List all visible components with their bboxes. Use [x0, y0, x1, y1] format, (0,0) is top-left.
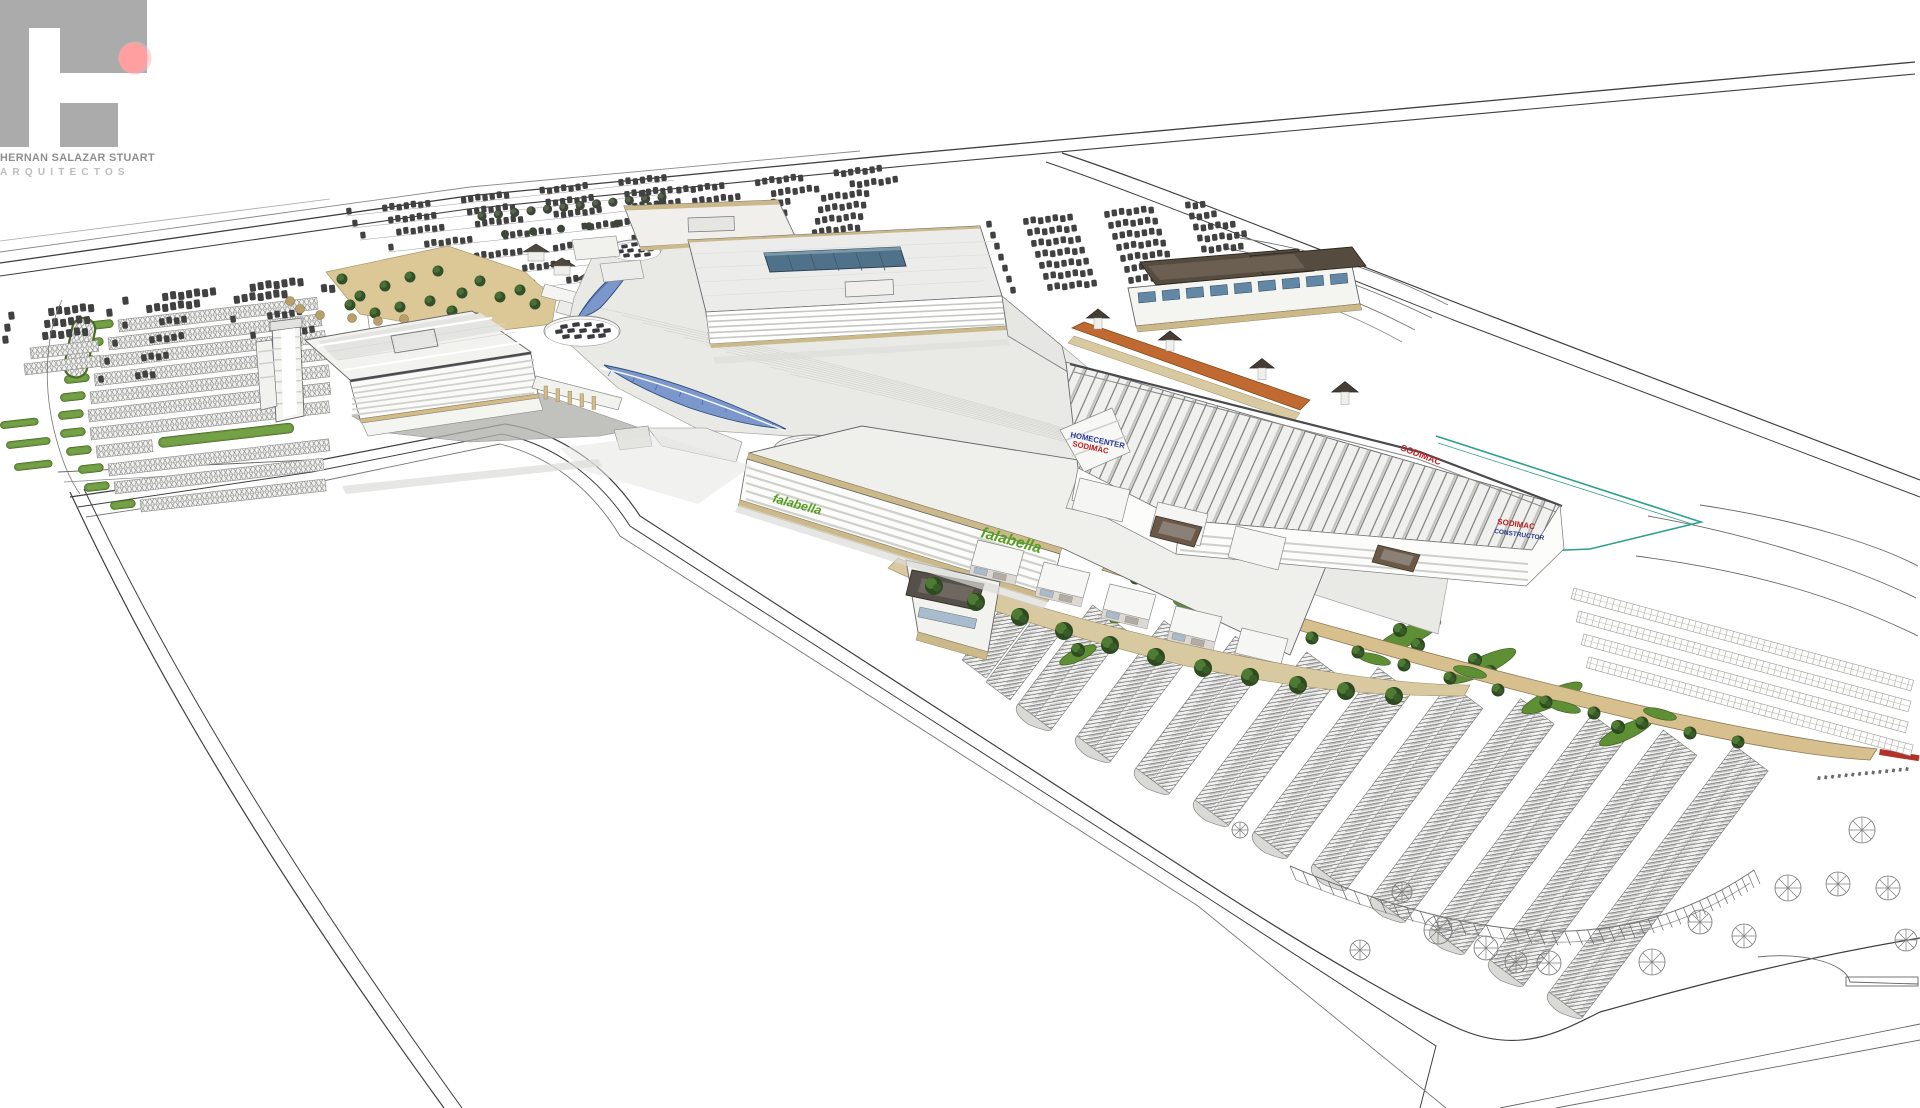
svg-text:HERNAN SALAZAR STUART: HERNAN SALAZAR STUART [0, 152, 155, 164]
svg-text:ARQUITECTOS: ARQUITECTOS [0, 167, 130, 178]
